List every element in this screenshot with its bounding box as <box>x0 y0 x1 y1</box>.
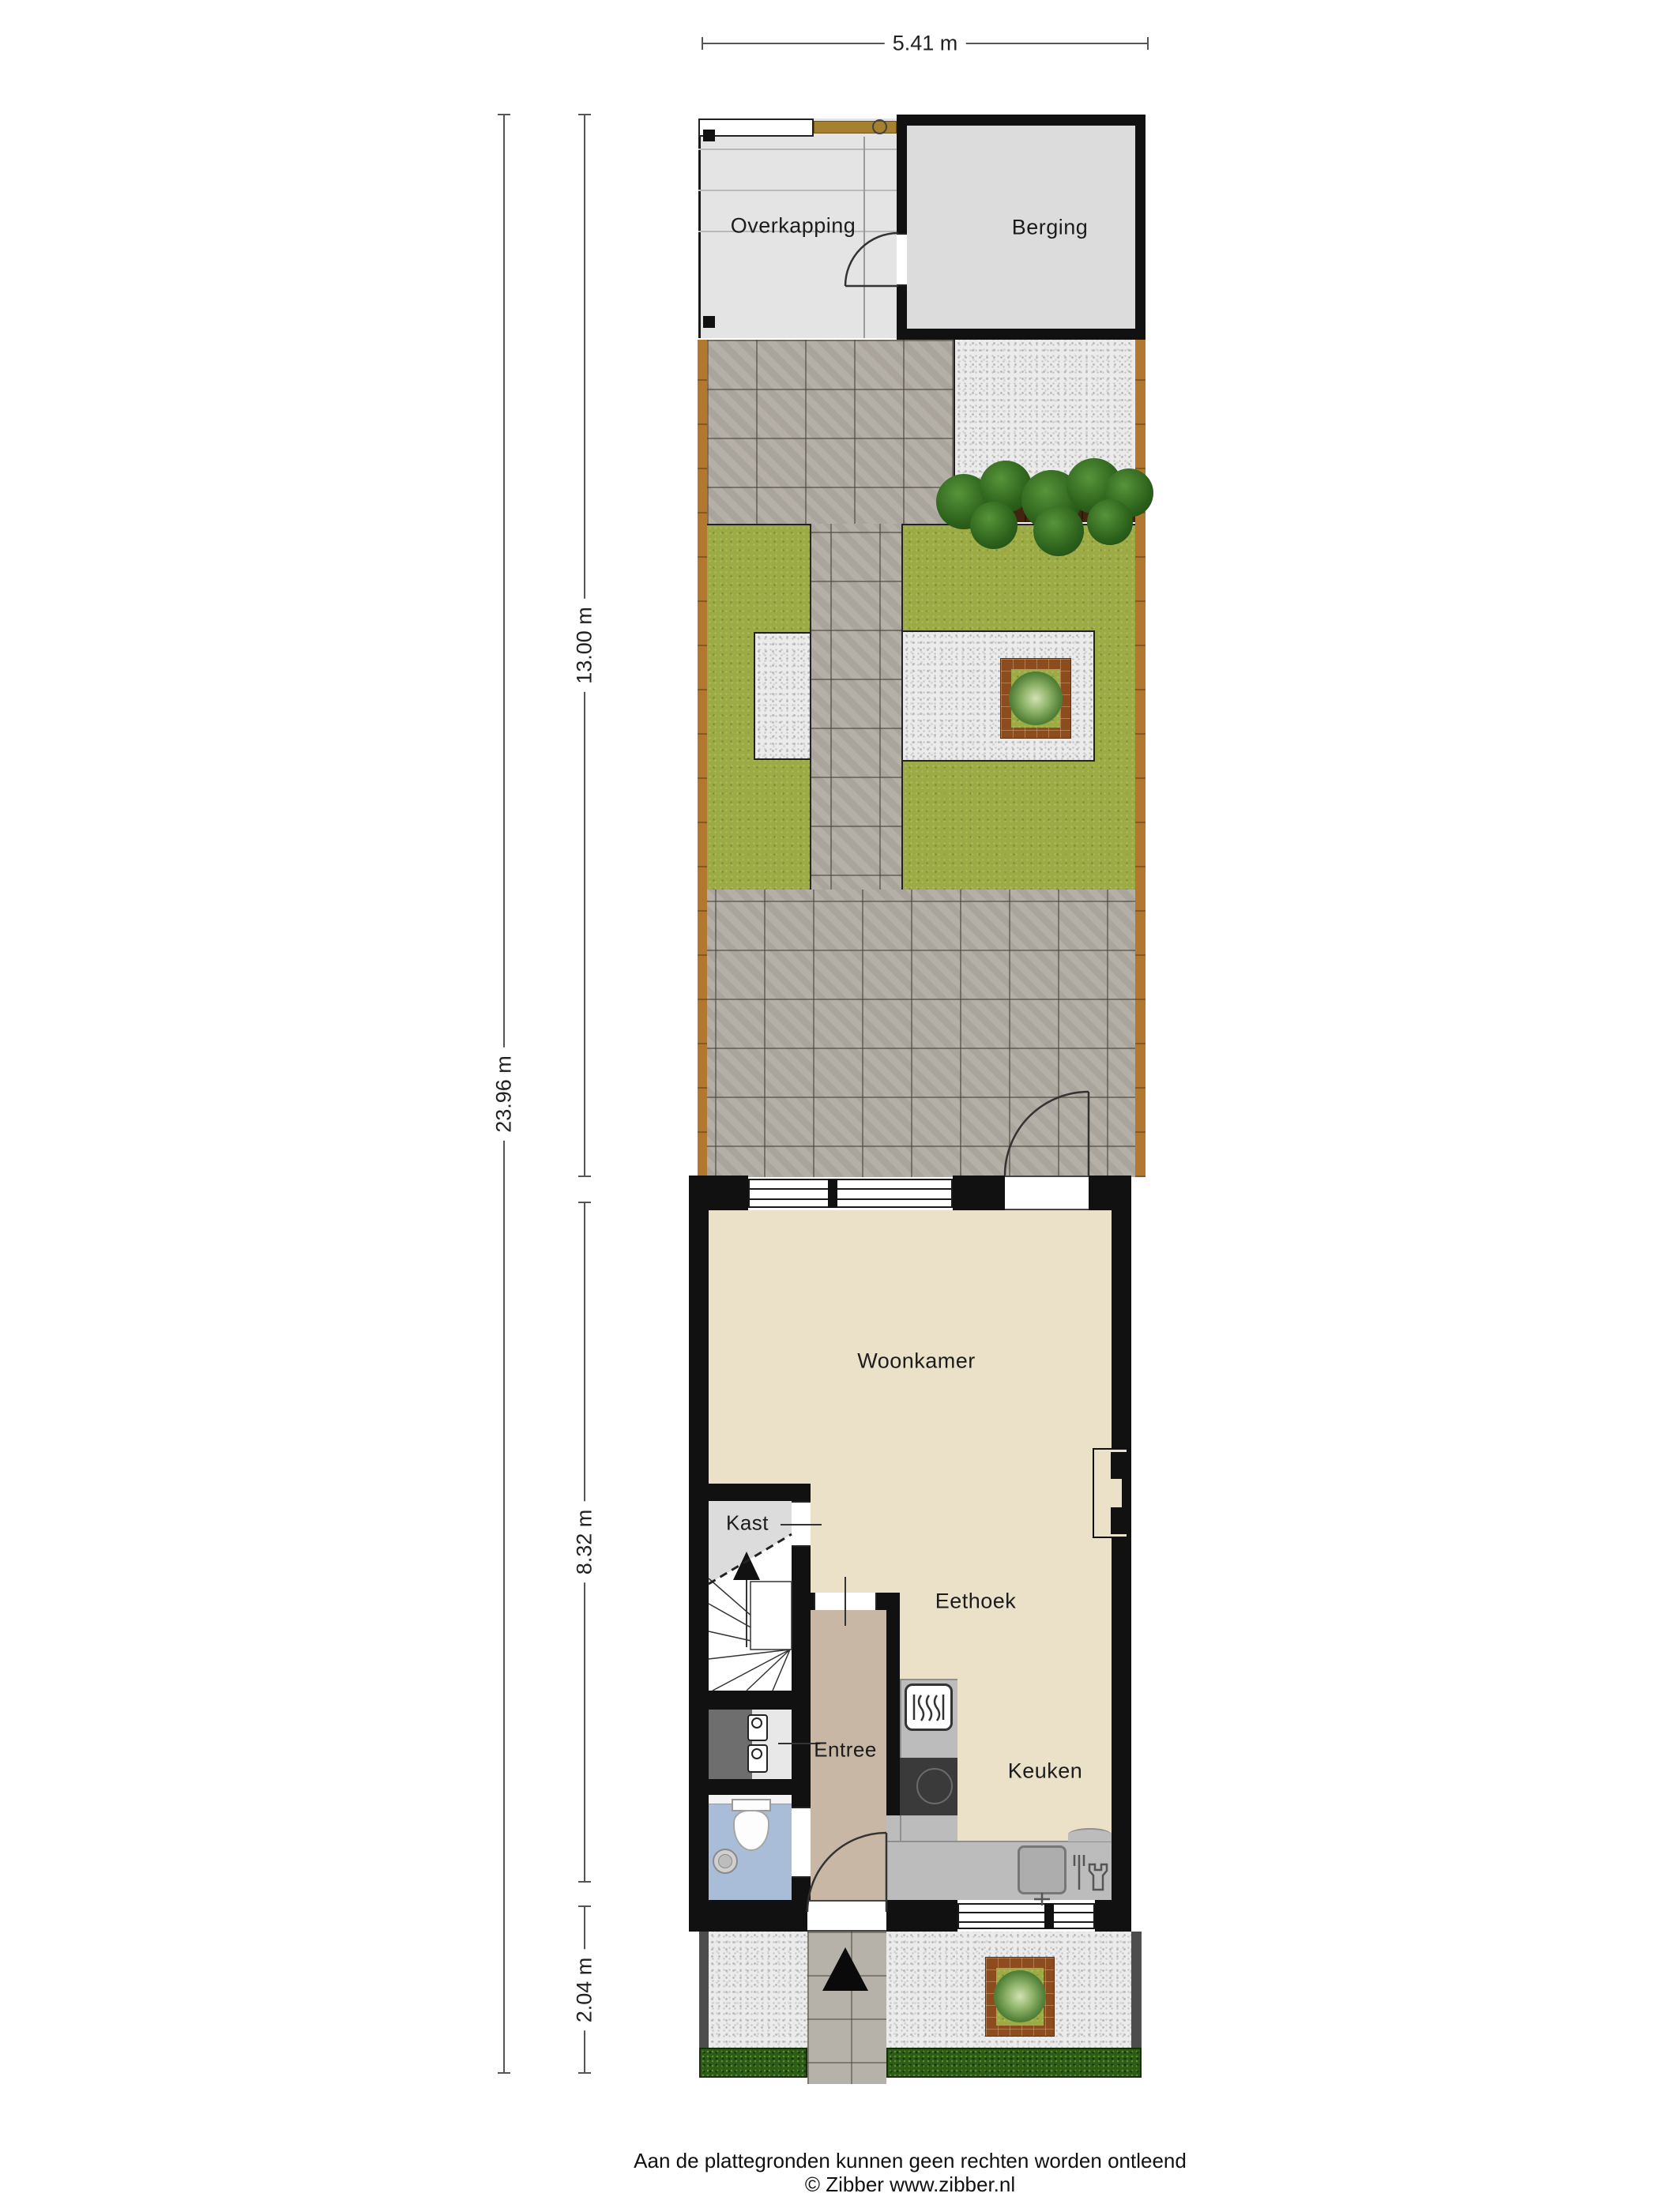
rear-window-divider <box>828 1179 837 1208</box>
storage-wall-top <box>897 115 1145 126</box>
closet-label: Kast <box>726 1511 769 1536</box>
house-wall-front-pier <box>886 1900 957 1932</box>
storage-door-opening <box>897 233 907 286</box>
shrub-icon <box>970 502 1018 549</box>
house-wall-rear-corner <box>689 1176 748 1210</box>
canopy-post <box>703 130 715 141</box>
storage-wall-left <box>897 286 907 340</box>
kitchen-counter-bottom <box>886 1841 1112 1900</box>
footer-copyright: © Zibber www.zibber.nl <box>805 2172 1015 2197</box>
dimension-tick <box>1147 37 1149 50</box>
canopy-beam-line <box>698 149 897 150</box>
dimension-tick <box>578 1176 591 1177</box>
front-window <box>957 1903 1095 1929</box>
footer-disclaimer: Aan de plattegronden kunnen geen rechten… <box>634 2149 1187 2173</box>
dimension-tick <box>578 1881 591 1883</box>
cooktop-burner <box>916 1768 953 1804</box>
house-wall-front-left <box>689 1900 807 1932</box>
canopy-beam-roller-icon <box>872 119 887 134</box>
storage-wall-bottom <box>897 329 1145 340</box>
canopy-label: Overkapping <box>731 214 856 239</box>
house-wall-rear-corner <box>1089 1176 1131 1210</box>
meter-cupboard-floor-dark <box>709 1710 752 1779</box>
entry-door-opening <box>814 1593 877 1610</box>
house-wall-rear-pier <box>953 1176 1005 1210</box>
house-wall-right <box>1112 1176 1131 1932</box>
garden-path <box>811 524 901 890</box>
sink-icon <box>1018 1845 1066 1894</box>
backyard-paving-upper <box>707 340 954 524</box>
canopy-beam-line <box>698 190 897 191</box>
kitchen-label: Keuken <box>1008 1759 1083 1784</box>
shrub-icon <box>1087 499 1133 545</box>
dining-area-label: Eethoek <box>935 1589 1017 1614</box>
dimension-house-label: 8.32 m <box>571 1502 599 1583</box>
living-room-label: Woonkamer <box>857 1349 976 1374</box>
canopy-roof-edge <box>698 118 814 137</box>
storage-wall-right <box>1135 115 1145 340</box>
gravel-patch-left <box>754 632 811 760</box>
storage-label: Berging <box>1012 216 1089 240</box>
house-wall-left <box>689 1176 709 1932</box>
dimension-tick <box>578 2072 591 2074</box>
house-wall-front-corner <box>1095 1900 1131 1932</box>
meter-wall-bottom <box>709 1779 811 1795</box>
dimension-total-label: 23.96 m <box>491 1048 518 1141</box>
stairs-wall-bottom <box>709 1691 811 1710</box>
toilet-door-opening <box>792 1807 811 1878</box>
meter-box-dial <box>751 1717 762 1729</box>
back-door-opening <box>1005 1176 1089 1210</box>
entry-hall-label: Entree <box>814 1738 877 1762</box>
floor-plan: 5.41 m 23.96 m 13.00 m 8.32 m 2.04 m Ove… <box>0 0 1659 2212</box>
front-door-opening <box>807 1900 886 1932</box>
dimension-tick <box>578 1905 591 1907</box>
dimension-backyard-label: 13.00 m <box>571 599 599 692</box>
dimension-tick <box>578 1202 591 1203</box>
washbasin-inner <box>718 1854 732 1868</box>
front-hedge-left <box>699 2048 807 2078</box>
plant-icon <box>1009 671 1063 725</box>
canopy-post <box>703 316 715 328</box>
chimney-flue-notch <box>1111 1479 1122 1507</box>
storage-wall-left <box>897 115 907 233</box>
entry-wall-right <box>886 1593 900 1815</box>
dimension-tick <box>498 2072 510 2074</box>
counter-round-end <box>1068 1828 1112 1841</box>
closet-door-opening <box>792 1501 811 1547</box>
dimension-tick <box>578 114 591 115</box>
front-hedge-right <box>886 2048 1142 2078</box>
front-path <box>807 1932 886 2084</box>
dimension-width-label: 5.41 m <box>885 30 966 58</box>
front-window-divider <box>1044 1903 1054 1929</box>
shrub-icon <box>1033 506 1084 556</box>
garden-fence-left <box>698 340 707 1177</box>
dimension-tick <box>702 37 703 50</box>
meter-box-dial <box>751 1748 762 1759</box>
backyard-patio <box>707 890 1135 1177</box>
dimension-frontyard-label: 2.04 m <box>571 1950 599 2031</box>
garden-fence-right <box>1135 340 1145 1177</box>
dimension-tick <box>498 114 510 115</box>
plant-icon <box>994 1970 1046 2022</box>
front-gravel-left <box>709 1932 807 2048</box>
rear-window <box>748 1179 953 1208</box>
canopy-roof-line <box>863 137 865 338</box>
oven-icon <box>905 1683 953 1731</box>
